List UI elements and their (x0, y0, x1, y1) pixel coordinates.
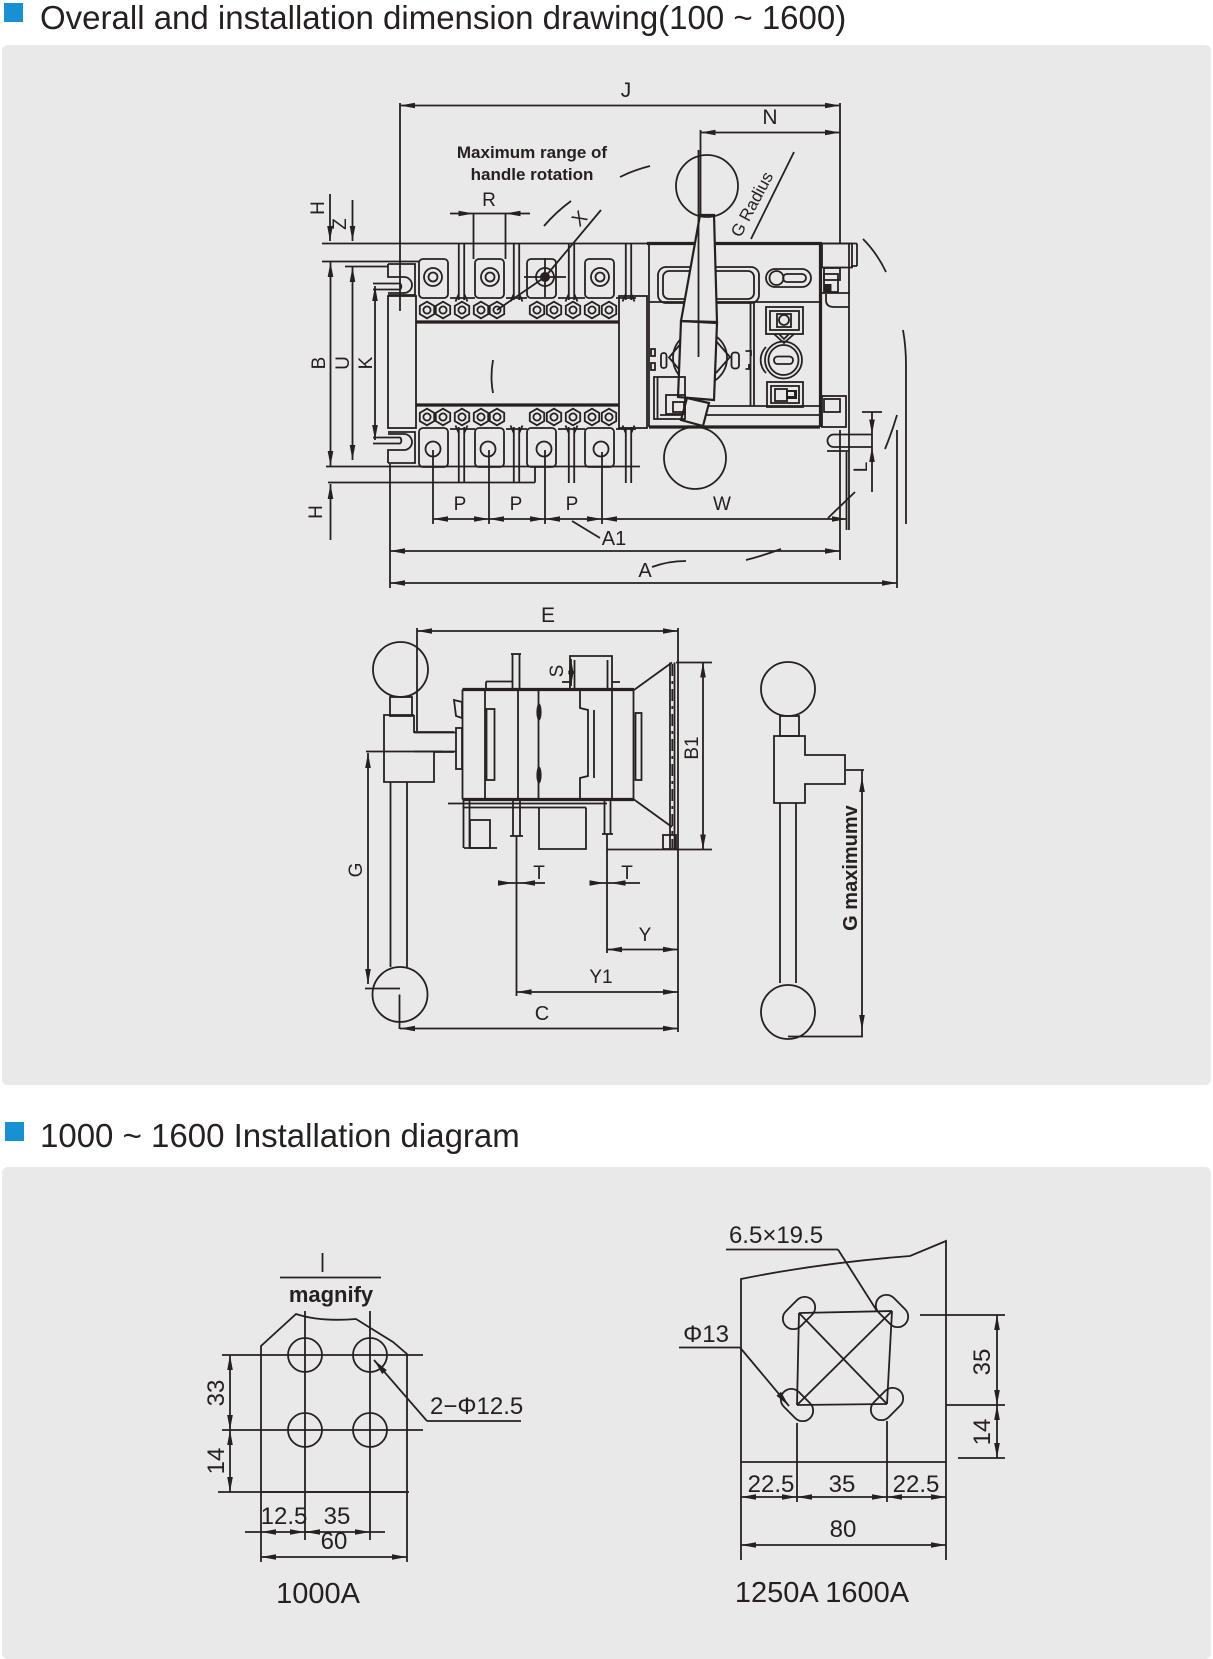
svg-text:14: 14 (969, 1419, 996, 1446)
svg-text:35: 35 (324, 1503, 351, 1530)
svg-text:6.5×19.5: 6.5×19.5 (729, 1222, 823, 1249)
svg-text:12.5: 12.5 (261, 1503, 308, 1530)
svg-text:22.5: 22.5 (893, 1471, 940, 1498)
svg-text:G maximumv: G maximumv (840, 804, 862, 930)
svg-text:1000A: 1000A (276, 1578, 361, 1610)
svg-text:Y1: Y1 (589, 967, 612, 988)
svg-text:U: U (333, 356, 354, 370)
svg-text:2−Φ12.5: 2−Φ12.5 (430, 1393, 523, 1420)
svg-text:33: 33 (203, 1380, 230, 1407)
svg-text:H: H (308, 201, 329, 215)
svg-text:L: L (851, 462, 872, 473)
svg-text:Z: Z (330, 218, 351, 230)
svg-text:Overall and installation dimen: Overall and installation dimension drawi… (40, 0, 846, 36)
svg-text:14: 14 (203, 1448, 230, 1475)
svg-text:H: H (306, 505, 327, 519)
svg-text:T: T (533, 863, 545, 884)
svg-text:A1: A1 (602, 528, 626, 550)
svg-text:W: W (713, 494, 731, 515)
svg-text:1000 ~ 1600 Installation diagr: 1000 ~ 1600 Installation diagram (40, 1117, 520, 1154)
svg-text:Φ13: Φ13 (683, 1321, 729, 1348)
svg-text:22.5: 22.5 (748, 1471, 795, 1498)
svg-text:N: N (762, 106, 777, 129)
svg-text:Maximum range of: Maximum range of (457, 143, 608, 162)
svg-text:S: S (547, 665, 568, 678)
svg-text:J: J (621, 79, 632, 102)
svg-text:35: 35 (829, 1471, 856, 1498)
svg-text:magnify: magnify (289, 1282, 374, 1307)
svg-text:C: C (535, 1003, 549, 1025)
svg-text:60: 60 (321, 1528, 348, 1555)
svg-text:P: P (510, 494, 523, 515)
svg-text:P: P (566, 494, 579, 515)
svg-text:80: 80 (830, 1516, 857, 1543)
svg-text:B: B (309, 357, 330, 370)
svg-text:1250A 1600A: 1250A 1600A (735, 1577, 910, 1609)
svg-text:R: R (482, 190, 496, 211)
svg-text:A: A (638, 560, 652, 582)
svg-text:K: K (356, 356, 377, 369)
svg-text:Y: Y (639, 925, 652, 946)
svg-text:G: G (346, 863, 367, 878)
svg-text:B1: B1 (682, 736, 703, 759)
svg-text:E: E (541, 604, 555, 627)
svg-text:35: 35 (969, 1349, 996, 1376)
svg-text:T: T (621, 863, 633, 884)
svg-text:handle rotation: handle rotation (471, 165, 594, 184)
svg-text:P: P (454, 494, 467, 515)
